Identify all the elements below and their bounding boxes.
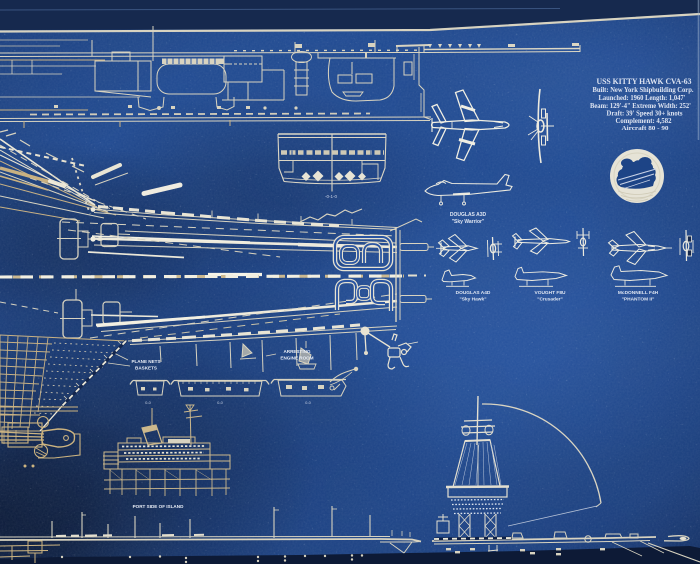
svg-text:"Crusader": "Crusader" [537,297,563,303]
svg-text:0-0: 0-0 [217,400,224,405]
svg-text:Aircraft 80 - 90: Aircraft 80 - 90 [622,125,669,132]
svg-text:USS KITTY HAWK CVA-63: USS KITTY HAWK CVA-63 [597,77,692,86]
svg-text:0-0: 0-0 [145,400,152,405]
svg-text:Launched: 1960 Length: 1,04: Launched: 1960 Length: 1,047' [599,94,686,102]
svg-text:VOUGHT F8U: VOUGHT F8U [535,290,566,296]
svg-text:PORT SIDE OF ISLAND: PORT SIDE OF ISLAND [133,504,184,509]
svg-text:"Sky Hawk": "Sky Hawk" [460,297,487,303]
svg-text:"Sky Warrior": "Sky Warrior" [452,219,485,225]
svg-text:DOUGLAS A4D: DOUGLAS A4D [456,290,491,296]
svg-text:"PHANTOM II": "PHANTOM II" [622,297,655,303]
svg-text:0-0: 0-0 [305,400,312,405]
svg-text:PLANE NETS: PLANE NETS [131,359,160,364]
svg-text:Built: New York Shipbuilding: Built: New York Shipbuilding Corp. [593,86,694,94]
svg-text:ENGINE ROOM: ENGINE ROOM [280,356,313,361]
svg-text:McDONNELL F4H: McDONNELL F4H [618,290,659,296]
svg-text:-0-1-0: -0-1-0 [325,194,338,199]
svg-text:ARRESTING: ARRESTING [283,349,310,354]
svg-text:DOUGLAS A3D: DOUGLAS A3D [450,212,487,218]
svg-text:BASKETS: BASKETS [135,366,157,371]
svg-text:Complement: 4,582: Complement: 4,582 [616,117,672,125]
